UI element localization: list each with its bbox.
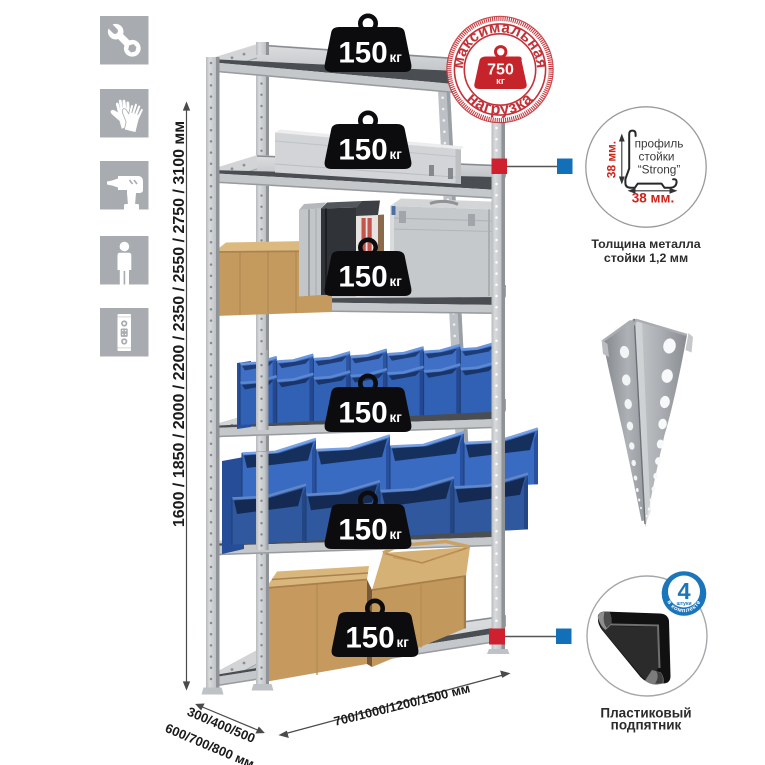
svg-text:38 мм.: 38 мм. bbox=[632, 191, 675, 206]
svg-text:кг: кг bbox=[397, 635, 410, 650]
svg-text:150: 150 bbox=[338, 514, 387, 547]
svg-text:стойки 1,2 мм: стойки 1,2 мм bbox=[604, 251, 688, 265]
svg-text:38 мм.: 38 мм. bbox=[605, 141, 619, 178]
svg-text:150: 150 bbox=[338, 37, 387, 70]
svg-text:1600 / 1850 / 2000 / 2200 / 23: 1600 / 1850 / 2000 / 2200 / 2350 / 2550 … bbox=[171, 121, 188, 527]
svg-text:кг: кг bbox=[390, 527, 403, 542]
svg-text:подпятник: подпятник bbox=[611, 718, 682, 733]
svg-text:кг: кг bbox=[496, 76, 505, 87]
svg-text:кг: кг bbox=[390, 50, 403, 65]
svg-text:Толщина металла: Толщина металла bbox=[591, 237, 700, 251]
svg-text:кг: кг bbox=[390, 410, 403, 425]
svg-text:“Strong”: “Strong” bbox=[638, 163, 681, 177]
svg-text:150: 150 bbox=[338, 134, 387, 167]
svg-text:150: 150 bbox=[345, 622, 394, 655]
svg-text:стойки: стойки bbox=[638, 150, 674, 164]
svg-text:150: 150 bbox=[338, 397, 387, 430]
svg-text:150: 150 bbox=[338, 261, 387, 294]
svg-text:кг: кг bbox=[390, 274, 403, 289]
svg-text:штуки: штуки bbox=[676, 601, 691, 607]
svg-text:кг: кг bbox=[390, 147, 403, 162]
svg-text:профиль: профиль bbox=[635, 137, 684, 151]
